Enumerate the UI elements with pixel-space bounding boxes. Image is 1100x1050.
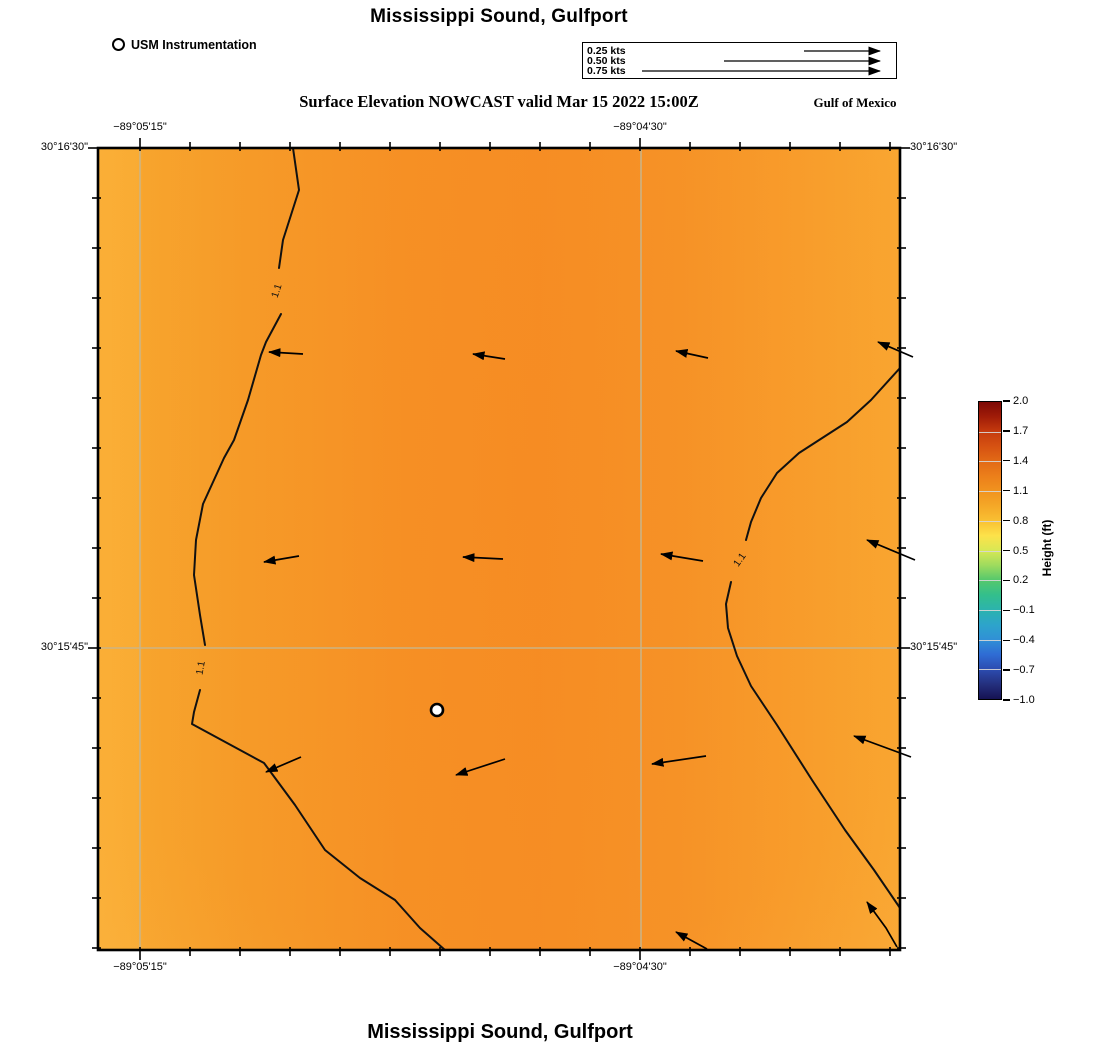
colorbar-tick — [1003, 460, 1010, 461]
colorbar-tick-label: 1.7 — [1013, 424, 1028, 438]
colorbar-tick-label: −1.0 — [1013, 693, 1035, 707]
colorbar-segment-divider — [979, 640, 1001, 641]
axis-label-top-lon-1: −89°05'15" — [85, 121, 195, 133]
colorbar-segment-divider — [979, 669, 1001, 670]
velocity-scale-arrows: 0.25 kts 0.50 kts 0.75 kts — [583, 43, 895, 77]
colorbar-tick — [1003, 640, 1010, 641]
colorbar-segment-divider — [979, 432, 1001, 433]
colorbar-tick — [1003, 610, 1010, 611]
colorbar-tick-label: 2.0 — [1013, 394, 1028, 408]
usm-instrument-marker — [431, 704, 443, 716]
colorbar-tick — [1003, 490, 1010, 491]
forecast-subtitle: Surface Elevation NOWCAST valid Mar 15 2… — [98, 92, 900, 112]
colorbar-segment-divider — [979, 461, 1001, 462]
surface-elevation-map: 1.11.11.1 — [0, 0, 1100, 1050]
colorbar-tick-label: 1.4 — [1013, 454, 1028, 468]
colorbar-tick-label: −0.4 — [1013, 633, 1035, 647]
instrument-circle-icon — [112, 38, 125, 51]
colorbar-segment-divider — [979, 610, 1001, 611]
velocity-scale-legend: 0.25 kts 0.50 kts 0.75 kts — [582, 42, 897, 79]
axis-label-bottom-lon-1: −89°05'15" — [85, 961, 195, 973]
colorbar-tick-label: 0.8 — [1013, 514, 1028, 528]
colorbar-tick — [1003, 550, 1010, 551]
axis-label-right-lat-1: 30°16'30" — [910, 141, 1000, 153]
footer-title: Mississippi Sound, Gulfport — [0, 1021, 1000, 1044]
colorbar-tick — [1003, 430, 1010, 431]
colorbar-tick-label: 0.5 — [1013, 544, 1028, 558]
colorbar-tick-label: 0.2 — [1013, 573, 1028, 587]
colorbar-segment-divider — [979, 580, 1001, 581]
colorbar — [978, 401, 1002, 700]
colorbar-tick — [1003, 580, 1010, 581]
colorbar-tick-label: −0.7 — [1013, 663, 1035, 677]
axis-label-bottom-lon-2: −89°04'30" — [585, 961, 695, 973]
colorbar-tick — [1003, 669, 1010, 670]
colorbar-segment-divider — [979, 491, 1001, 492]
colorbar-axis-title: Height (ft) — [1040, 505, 1054, 591]
velocity-scale-label-075: 0.75 kts — [587, 65, 626, 77]
colorbar-segment-divider — [979, 521, 1001, 522]
colorbar-tick — [1003, 400, 1010, 401]
colorbar-tick-label: 1.1 — [1013, 484, 1028, 498]
colorbar-tick-label: −0.1 — [1013, 603, 1035, 617]
figure-canvas: 1.11.11.1 Mississippi Sound, Gulfport US… — [0, 0, 1100, 1050]
elevation-field-shading — [98, 148, 900, 950]
instrument-legend: USM Instrumentation — [112, 37, 257, 52]
instrument-legend-label: USM Instrumentation — [131, 38, 257, 52]
axis-label-left-lat-1: 30°16'30" — [6, 141, 88, 153]
colorbar-tick — [1003, 520, 1010, 521]
region-label: Gulf of Mexico — [800, 95, 910, 111]
axis-label-top-lon-2: −89°04'30" — [585, 121, 695, 133]
colorbar-segment-divider — [979, 551, 1001, 552]
page-title: Mississippi Sound, Gulfport — [98, 6, 900, 28]
colorbar-tick — [1003, 699, 1010, 700]
axis-label-left-lat-2: 30°15'45" — [6, 641, 88, 653]
